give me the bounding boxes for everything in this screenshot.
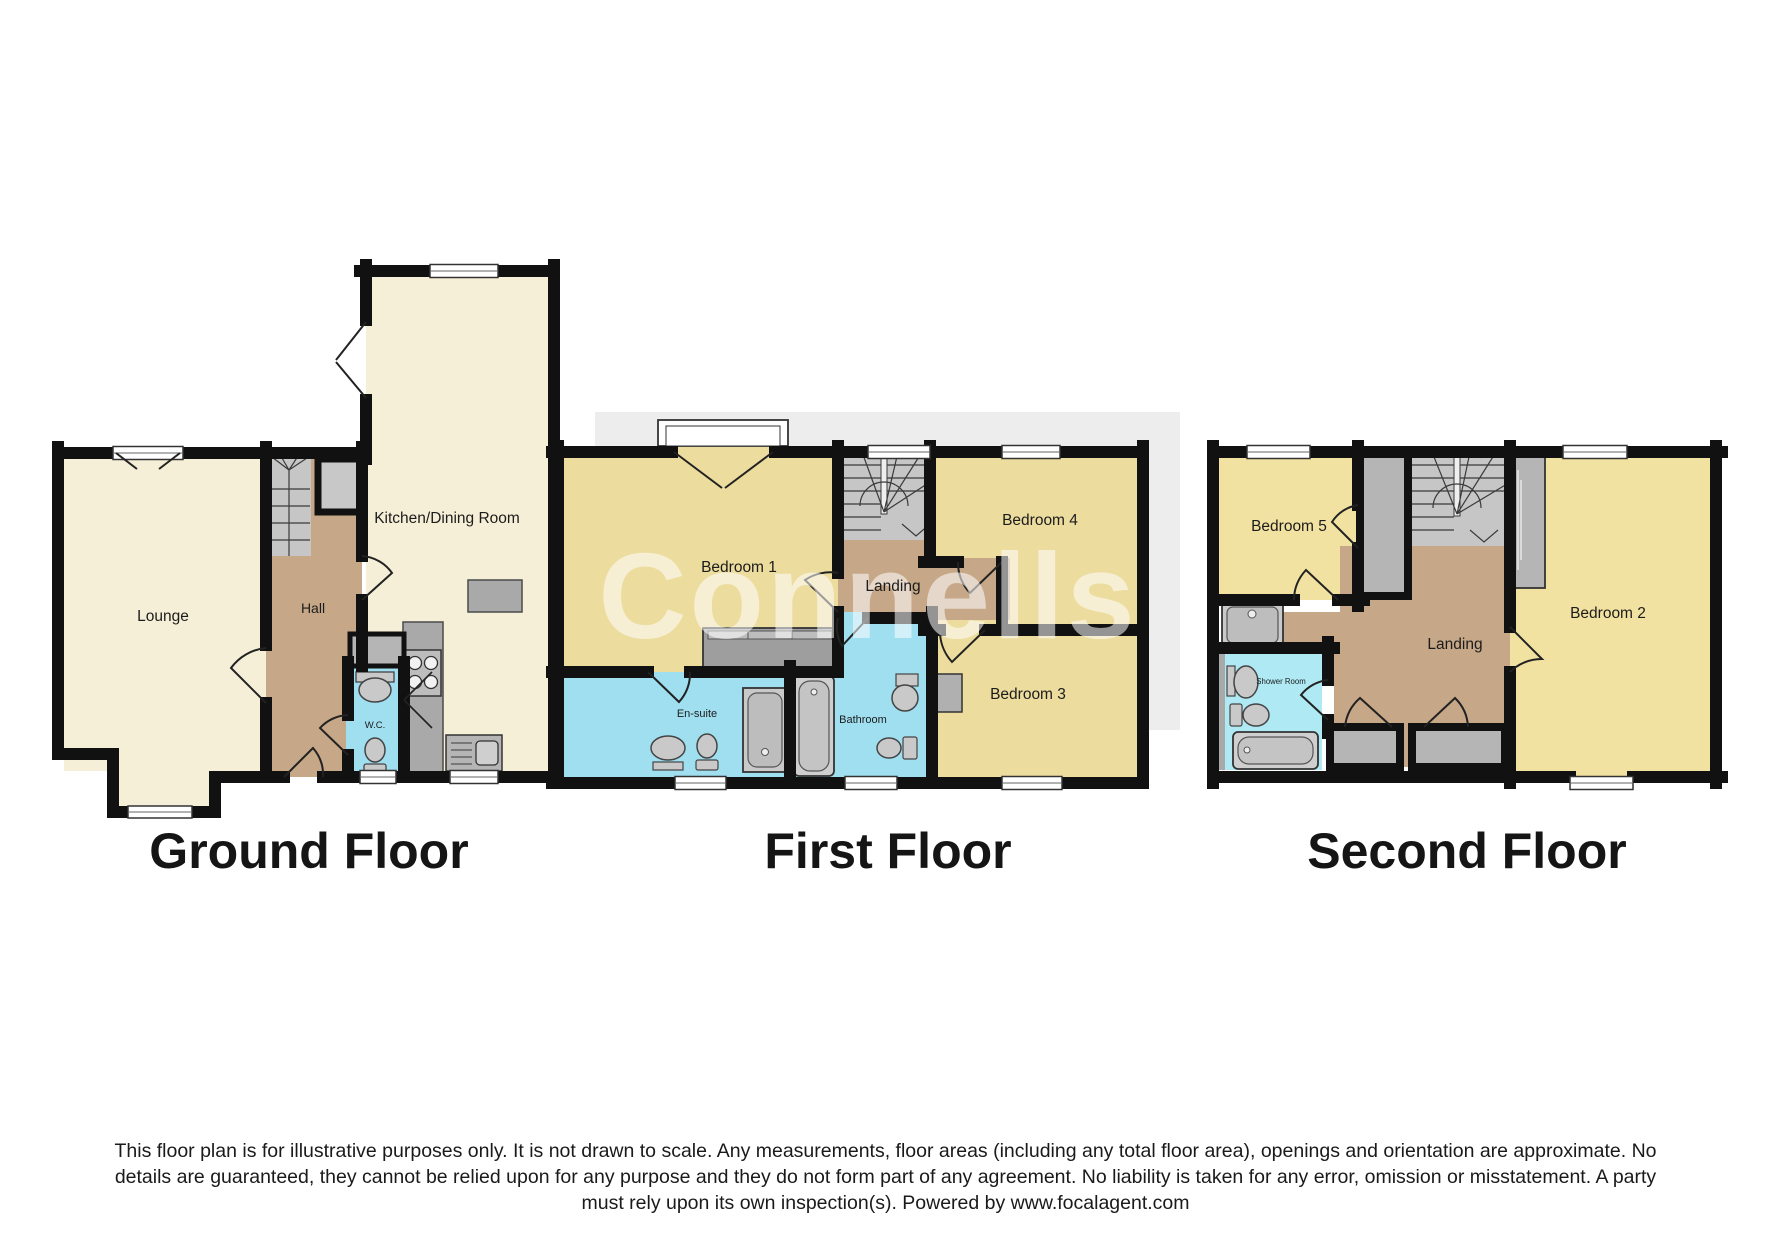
staircase-second	[1408, 452, 1507, 546]
room-label-bedroom5: Bedroom 5	[1251, 518, 1327, 535]
french-door-icon	[336, 322, 366, 398]
floor-titles: Ground Floor First Floor Second Floor	[149, 823, 1626, 879]
toilet-icon	[1230, 704, 1269, 726]
disclaimer: This floor plan is for illustrative purp…	[0, 1138, 1771, 1216]
floor-title-first: First Floor	[764, 823, 1011, 879]
bath-icon	[1233, 732, 1318, 769]
room-label-kitchen: Kitchen/Dining Room	[374, 510, 520, 527]
connells-watermark: Connells	[598, 528, 1137, 664]
closet-bedroom5	[1360, 452, 1408, 596]
room-label-hall: Hall	[301, 600, 325, 616]
room-label-ensuite: En-suite	[677, 708, 717, 720]
floorplan-drawing: Connells Lounge Hall W.C. Kitchen/Dining…	[0, 0, 1771, 1240]
room-label-bedroom4: Bedroom 4	[1002, 512, 1078, 529]
bay-window-icon	[658, 420, 788, 446]
closet-landing-left	[1330, 727, 1400, 767]
room-label-bedroom2: Bedroom 2	[1570, 605, 1646, 622]
toilet-icon	[877, 737, 917, 759]
sink-icon	[892, 674, 918, 711]
closet-bedroom2	[1513, 452, 1545, 588]
disclaimer-line: details are guaranteed, they cannot be r…	[0, 1164, 1771, 1190]
shower-icon	[743, 688, 787, 772]
staircase-first	[838, 452, 930, 540]
wardrobe-icon	[936, 674, 962, 712]
room-label-bedroom3: Bedroom 3	[990, 686, 1066, 703]
room-lounge-porch	[113, 771, 209, 806]
disclaimer-line: This floor plan is for illustrative purp…	[0, 1138, 1771, 1164]
sink-icon	[1227, 666, 1258, 698]
wc-sink-icon	[356, 672, 394, 702]
toilet-icon	[696, 734, 718, 770]
bath-icon	[794, 676, 834, 776]
floorplan-page: Connells Lounge Hall W.C. Kitchen/Dining…	[0, 0, 1771, 1240]
room-label-shower: Shower Room	[1256, 677, 1305, 686]
staircase-ground	[266, 453, 311, 556]
disclaimer-line: must rely upon its own inspection(s). Po…	[0, 1190, 1771, 1216]
sink-icon	[651, 736, 685, 770]
ground-floor-plan	[58, 265, 554, 819]
room-label-bedroom1: Bedroom 1	[701, 559, 777, 576]
floor-title-second: Second Floor	[1307, 823, 1626, 879]
wc-toilet-icon	[364, 738, 386, 773]
room-label-bathroom: Bathroom	[839, 714, 887, 726]
kitchen-island	[468, 580, 522, 612]
hall-closet	[318, 459, 360, 512]
kitchen-sink-icon	[446, 735, 502, 771]
room-label-lounge: Lounge	[137, 608, 189, 625]
floor-title-ground: Ground Floor	[149, 823, 468, 879]
hob-icon	[405, 650, 441, 696]
shower-tray-icon	[1222, 602, 1283, 648]
room-label-landing1: Landing	[865, 578, 920, 595]
closet-landing-right	[1412, 727, 1505, 767]
room-label-wc: W.C.	[365, 720, 386, 731]
room-label-landing2: Landing	[1427, 636, 1482, 653]
